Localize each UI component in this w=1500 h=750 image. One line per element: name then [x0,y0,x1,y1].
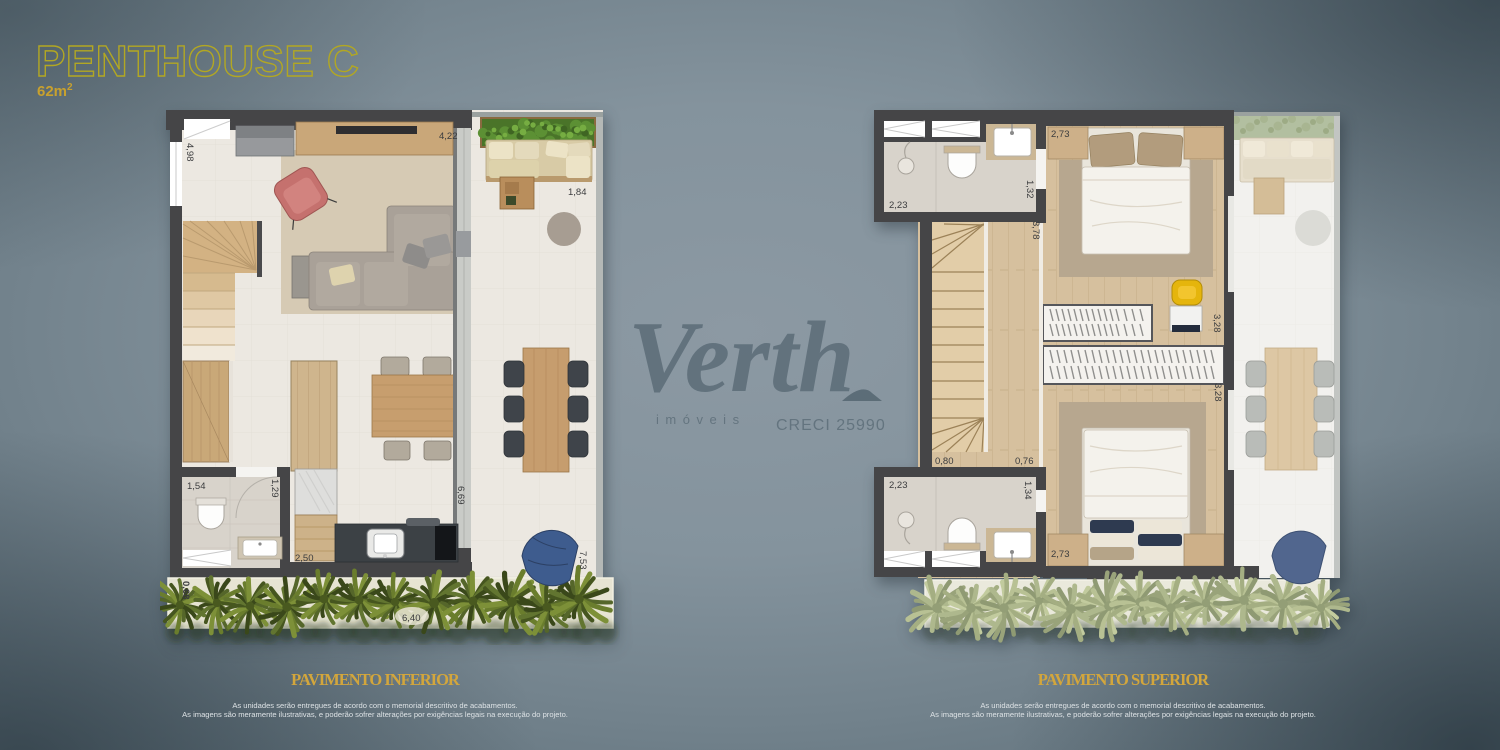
svg-text:1,32: 1,32 [1024,180,1035,199]
svg-text:4,22: 4,22 [439,131,458,142]
svg-text:imóveis: imóveis [656,412,746,427]
svg-text:4,98: 4,98 [184,143,195,162]
svg-text:3,78: 3,78 [1030,221,1041,240]
svg-text:1,84: 1,84 [568,187,587,198]
svg-text:1,34: 1,34 [1022,481,1033,500]
svg-text:0,68: 0,68 [180,581,191,600]
svg-text:2,73: 2,73 [1051,549,1070,560]
svg-text:1,54: 1,54 [187,481,206,492]
svg-text:2,23: 2,23 [889,480,908,491]
svg-text:3,28: 3,28 [1211,314,1222,333]
svg-text:3,28: 3,28 [1212,383,1223,402]
svg-text:2,23: 2,23 [889,200,908,211]
svg-text:2,50: 2,50 [295,553,314,564]
svg-text:7,53: 7,53 [577,551,588,570]
svg-text:0,80: 0,80 [935,456,954,467]
svg-text:Verth: Verth [628,301,855,414]
svg-text:0,76: 0,76 [1015,456,1034,467]
svg-text:6,40: 6,40 [402,613,421,624]
svg-text:6,69: 6,69 [455,486,466,505]
svg-text:1,29: 1,29 [269,479,280,498]
svg-text:2,73: 2,73 [1051,129,1070,140]
